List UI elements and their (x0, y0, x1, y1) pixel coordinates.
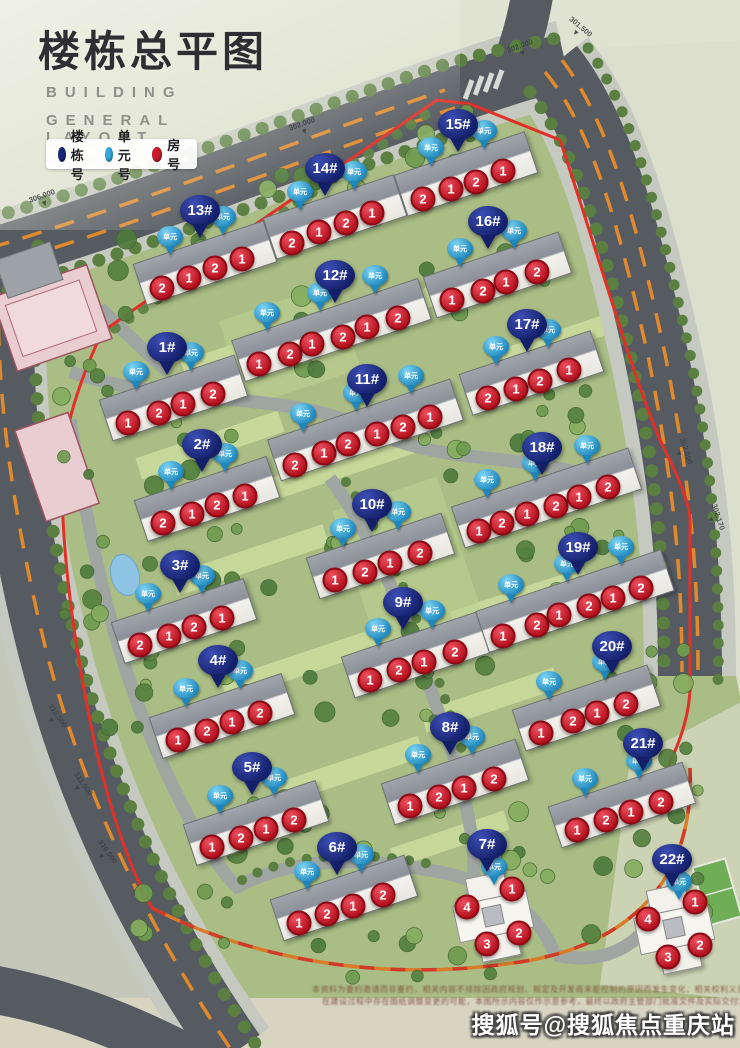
room-number-badge: 2 (528, 369, 553, 394)
pin-tail (172, 579, 188, 593)
building-pin-label: 17# (507, 309, 547, 340)
room-number-badge: 1 (233, 484, 258, 509)
unit-pin: 单元 (608, 536, 634, 566)
legend-item-room: 房号 (152, 135, 185, 173)
room-number-badge: 1 (157, 624, 182, 649)
building-pin: 17# (507, 309, 547, 352)
room-number-badge: 1 (504, 377, 529, 402)
room-number-badge: 2 (464, 170, 489, 195)
room-number-badge: 2 (387, 658, 412, 683)
room-number-badge: 1 (230, 247, 255, 272)
building-pin: 6# (317, 832, 357, 875)
building-pin: 15# (438, 109, 478, 152)
unit-pin-label: 单元 (207, 785, 233, 806)
room-number-badge: 1 (585, 701, 610, 726)
pin-tail (480, 235, 496, 249)
pin-tail (210, 674, 226, 688)
unit-pin: 单元 (483, 336, 509, 366)
room-number-badge: 2 (561, 709, 586, 734)
room-number-badge: 1 (254, 817, 279, 842)
room-number-badge: 2 (147, 401, 172, 426)
room-number-badge: 2 (391, 415, 416, 440)
building-pin: 16# (468, 206, 508, 249)
room-number-badge: 2 (283, 453, 308, 478)
unit-pin-label: 单元 (574, 435, 600, 456)
unit-pin-label: 单元 (290, 403, 316, 424)
building-pin-label: 5# (232, 752, 272, 783)
room-number-badge: 1 (307, 220, 332, 245)
building-pin-label: 6# (317, 832, 357, 863)
pin-tail (359, 393, 375, 407)
unit-number-dot-icon (105, 147, 113, 162)
building-pin: 20# (592, 631, 632, 674)
pin-tail (302, 881, 312, 890)
pin-tail (192, 224, 208, 238)
room-number-badge: 2 (443, 640, 468, 665)
room-number-badge: 1 (491, 159, 516, 184)
unit-pin-label: 单元 (173, 678, 199, 699)
unit-pin-label: 单元 (474, 469, 500, 490)
room-number-badge: 2 (507, 921, 532, 946)
room-number-badge: 2 (490, 511, 515, 536)
legend-label: 房号 (167, 135, 185, 173)
pin-tail (406, 385, 416, 394)
room-number-badge: 2 (282, 808, 307, 833)
room-number-badge: 2 (577, 594, 602, 619)
pin-tail (604, 660, 620, 674)
room-number-badge: 2 (331, 325, 356, 350)
elevation-arrow-icon: ▼ (704, 515, 715, 525)
building-pin: 14# (305, 153, 345, 196)
room-number-badge: 1 (491, 624, 516, 649)
pin-tail (356, 864, 366, 873)
unit-pin-label: 单元 (483, 336, 509, 357)
room-number-badge: 2 (195, 719, 220, 744)
disclaimer-line1: 本资料为要约邀请而非要约，相关内容不排除因政府规划、规定及开发商未能控制的原因而… (312, 984, 740, 995)
building-pin-label: 18# (522, 432, 562, 463)
legend-label: 单元号 (118, 126, 138, 183)
subtitle-en-line1: BUILDING (46, 84, 183, 101)
pin-tail (295, 201, 305, 210)
pin-tail (506, 594, 516, 603)
pin-tail (427, 620, 437, 629)
unit-pin-label: 单元 (362, 265, 388, 286)
pin-tail (186, 362, 196, 371)
room-number-badge: 2 (614, 692, 639, 717)
unit-pin-label: 单元 (498, 574, 524, 595)
pin-tail (582, 455, 592, 464)
pin-tail (194, 458, 210, 472)
room-number-badge: 2 (471, 279, 496, 304)
room-number-badge: 1 (177, 266, 202, 291)
pin-tail (181, 698, 191, 707)
building-pin: 13# (180, 195, 220, 238)
building-pin: 4# (198, 645, 238, 688)
site-plan-poster: 楼栋总平图 BUILDING GENERAL LAYOUT 楼栋号 单元号 房号… (0, 0, 740, 1048)
pin-tail (338, 538, 348, 547)
unit-pin: 单元 (572, 768, 598, 798)
pin-tail (479, 140, 489, 149)
room-number-badge: 1 (365, 422, 390, 447)
pin-tail (519, 338, 535, 352)
pin-tail (426, 157, 436, 166)
unit-pin: 单元 (254, 302, 280, 332)
room-number-badge: 1 (567, 485, 592, 510)
pin-tail (450, 138, 466, 152)
room-number-badge: 2 (411, 187, 436, 212)
room-number-badge: 2 (594, 808, 619, 833)
pin-tail (570, 561, 586, 575)
room-number-badge: 1 (467, 519, 492, 544)
room-number-badge: 4 (636, 907, 661, 932)
pin-tail (215, 805, 225, 814)
building-pin: 11# (347, 364, 387, 407)
building-pin: 9# (383, 587, 423, 630)
pin-tail (329, 861, 345, 875)
room-number-badge: 2 (371, 883, 396, 908)
room-number-badge: 2 (128, 633, 153, 658)
room-number-badge: 1 (166, 728, 191, 753)
unit-pin: 单元 (498, 574, 524, 604)
unit-pin: 单元 (158, 461, 184, 491)
building-pin: 2# (182, 429, 222, 472)
building-pin: 12# (315, 260, 355, 303)
pin-tail (482, 489, 492, 498)
room-number-badge: 1 (247, 352, 272, 377)
unit-pin: 单元 (290, 403, 316, 433)
room-number-badge: 2 (544, 494, 569, 519)
building-pin-label: 16# (468, 206, 508, 237)
unit-pin-label: 单元 (405, 744, 431, 765)
watermark: 搜狐号@搜狐焦点重庆站 (472, 1006, 735, 1040)
pin-tail (298, 423, 308, 432)
tower-wing (481, 904, 505, 928)
unit-pin: 单元 (474, 469, 500, 499)
building-pin-label: 7# (467, 829, 507, 860)
pin-tail (349, 181, 359, 190)
room-number-badge: 2 (408, 541, 433, 566)
room-number-badge: 1 (355, 315, 380, 340)
building-pin-label: 4# (198, 645, 238, 676)
unit-pin: 单元 (123, 361, 149, 391)
room-number-badge: 1 (312, 441, 337, 466)
room-number-badge: 1 (412, 650, 437, 675)
elevation-arrow-icon: ▼ (672, 449, 683, 459)
room-number-badge: 2 (596, 475, 621, 500)
room-number-badge: 2 (336, 432, 361, 457)
unit-pin: 单元 (398, 365, 424, 395)
building-pin-label: 12# (315, 260, 355, 291)
pin-tail (491, 356, 501, 365)
building-pin-label: 13# (180, 195, 220, 226)
unit-pin-label: 单元 (608, 536, 634, 557)
room-number-badge: 2 (386, 306, 411, 331)
building-pin-label: 2# (182, 429, 222, 460)
room-number-badge: 2 (482, 767, 507, 792)
building-pin-label: 14# (305, 153, 345, 184)
building-pin-label: 21# (623, 728, 663, 759)
room-number-badge: 3 (656, 945, 681, 970)
unit-pin: 单元 (574, 435, 600, 465)
pin-tail (534, 461, 550, 475)
legend-item-unit: 单元号 (105, 126, 138, 183)
room-number-badge: 2 (280, 231, 305, 256)
unit-pin: 单元 (362, 265, 388, 295)
room-number-dot-icon (152, 147, 162, 162)
room-number-badge: 1 (418, 405, 443, 430)
room-number-badge: 1 (358, 668, 383, 693)
pin-tail (634, 770, 644, 779)
building-pin-label: 1# (147, 332, 187, 363)
pin-tail (327, 289, 343, 303)
pin-tail (393, 521, 403, 530)
room-number-badge: 2 (151, 511, 176, 536)
room-number-badge: 1 (398, 794, 423, 819)
room-number-badge: 3 (475, 932, 500, 957)
room-number-badge: 1 (116, 411, 141, 436)
room-number-badge: 2 (182, 615, 207, 640)
room-number-badge: 1 (323, 568, 348, 593)
room-number-badge: 2 (315, 902, 340, 927)
pin-tail (244, 781, 260, 795)
pin-tail (395, 616, 411, 630)
room-number-badge: 1 (557, 358, 582, 383)
room-number-badge: 2 (150, 276, 175, 301)
pin-tail (635, 757, 651, 771)
building-pin: 21# (623, 728, 663, 771)
room-number-badge: 1 (171, 392, 196, 417)
pin-tail (131, 381, 141, 390)
pin-tail (479, 858, 495, 872)
room-number-badge: 1 (200, 835, 225, 860)
room-number-badge: 1 (287, 911, 312, 936)
room-number-badge: 1 (439, 177, 464, 202)
unit-pin: 单元 (207, 785, 233, 815)
pin-tail (373, 638, 383, 647)
building-pin-label: 22# (652, 844, 692, 875)
building-pin-label: 9# (383, 587, 423, 618)
room-number-badge: 1 (547, 603, 572, 628)
room-number-badge: 1 (619, 800, 644, 825)
unit-pin-label: 单元 (536, 671, 562, 692)
room-number-badge: 2 (248, 701, 273, 726)
room-number-badge: 1 (440, 288, 465, 313)
pin-tail (413, 764, 423, 773)
room-number-badge: 2 (201, 382, 226, 407)
building-pin: 19# (558, 532, 598, 575)
unit-pin: 单元 (405, 744, 431, 774)
building-pin-label: 19# (558, 532, 598, 563)
pin-tail (159, 361, 175, 375)
pin-tail (455, 258, 465, 267)
building-pin: 8# (430, 712, 470, 755)
pin-tail (315, 302, 325, 311)
pin-tail (664, 873, 680, 887)
building-pin-label: 8# (430, 712, 470, 743)
room-number-badge: 1 (565, 818, 590, 843)
building-pin-label: 10# (352, 489, 392, 520)
building-pin: 7# (467, 829, 507, 872)
room-number-badge: 2 (688, 933, 713, 958)
pin-tail (580, 788, 590, 797)
building-pin: 22# (652, 844, 692, 887)
building-pin: 5# (232, 752, 272, 795)
unit-pin-label: 单元 (135, 583, 161, 604)
pin-tail (442, 741, 458, 755)
pin-tail (262, 322, 272, 331)
building-pin-label: 15# (438, 109, 478, 140)
room-number-badge: 2 (476, 386, 501, 411)
pin-tail (317, 182, 333, 196)
room-number-badge: 1 (341, 894, 366, 919)
room-number-badge: 2 (629, 576, 654, 601)
legend-item-building: 楼栋号 (58, 126, 91, 183)
legend: 楼栋号 单元号 房号 (46, 139, 197, 169)
pin-tail (544, 691, 554, 700)
page-title: 楼栋总平图 (38, 18, 438, 79)
room-number-badge: 2 (203, 256, 228, 281)
pin-tail (489, 876, 499, 885)
room-number-badge: 1 (210, 606, 235, 631)
building-pin-label: 20# (592, 631, 632, 662)
building-pin: 3# (160, 550, 200, 593)
room-number-badge: 1 (601, 586, 626, 611)
pin-tail (143, 603, 153, 612)
pin-tail (370, 285, 380, 294)
pin-tail (166, 481, 176, 490)
room-number-badge: 2 (525, 260, 550, 285)
building-pin: 10# (352, 489, 392, 532)
unit-pin: 单元 (135, 583, 161, 613)
room-number-badge: 1 (180, 502, 205, 527)
unit-pin-label: 单元 (158, 461, 184, 482)
unit-pin: 单元 (536, 671, 562, 701)
room-number-badge: 2 (649, 790, 674, 815)
room-number-badge: 2 (427, 785, 452, 810)
room-number-badge: 1 (378, 551, 403, 576)
unit-pin-label: 单元 (254, 302, 280, 323)
room-number-badge: 1 (494, 270, 519, 295)
unit-pin-label: 单元 (572, 768, 598, 789)
building-pin: 18# (522, 432, 562, 475)
building-pin-label: 11# (347, 364, 387, 395)
unit-pin: 单元 (173, 678, 199, 708)
pin-tail (674, 891, 684, 900)
room-number-badge: 2 (334, 211, 359, 236)
room-number-badge: 1 (300, 332, 325, 357)
pin-tail (364, 518, 380, 532)
room-number-badge: 4 (455, 895, 480, 920)
building-pin: 1# (147, 332, 187, 375)
room-number-badge: 1 (452, 776, 477, 801)
pin-tail (165, 246, 175, 255)
room-number-badge: 1 (515, 502, 540, 527)
room-number-badge: 1 (220, 710, 245, 735)
unit-pin-label: 单元 (398, 365, 424, 386)
room-number-badge: 1 (360, 201, 385, 226)
building-pin-label: 3# (160, 550, 200, 581)
building-number-dot-icon (58, 147, 66, 162)
unit-pin-label: 单元 (123, 361, 149, 382)
tower-wing (662, 916, 686, 940)
legend-label: 楼栋号 (71, 126, 91, 183)
pin-tail (616, 556, 626, 565)
room-number-badge: 2 (205, 493, 230, 518)
room-number-badge: 1 (529, 721, 554, 746)
room-number-badge: 2 (353, 560, 378, 585)
room-number-badge: 2 (229, 826, 254, 851)
pin-tail (509, 240, 519, 249)
